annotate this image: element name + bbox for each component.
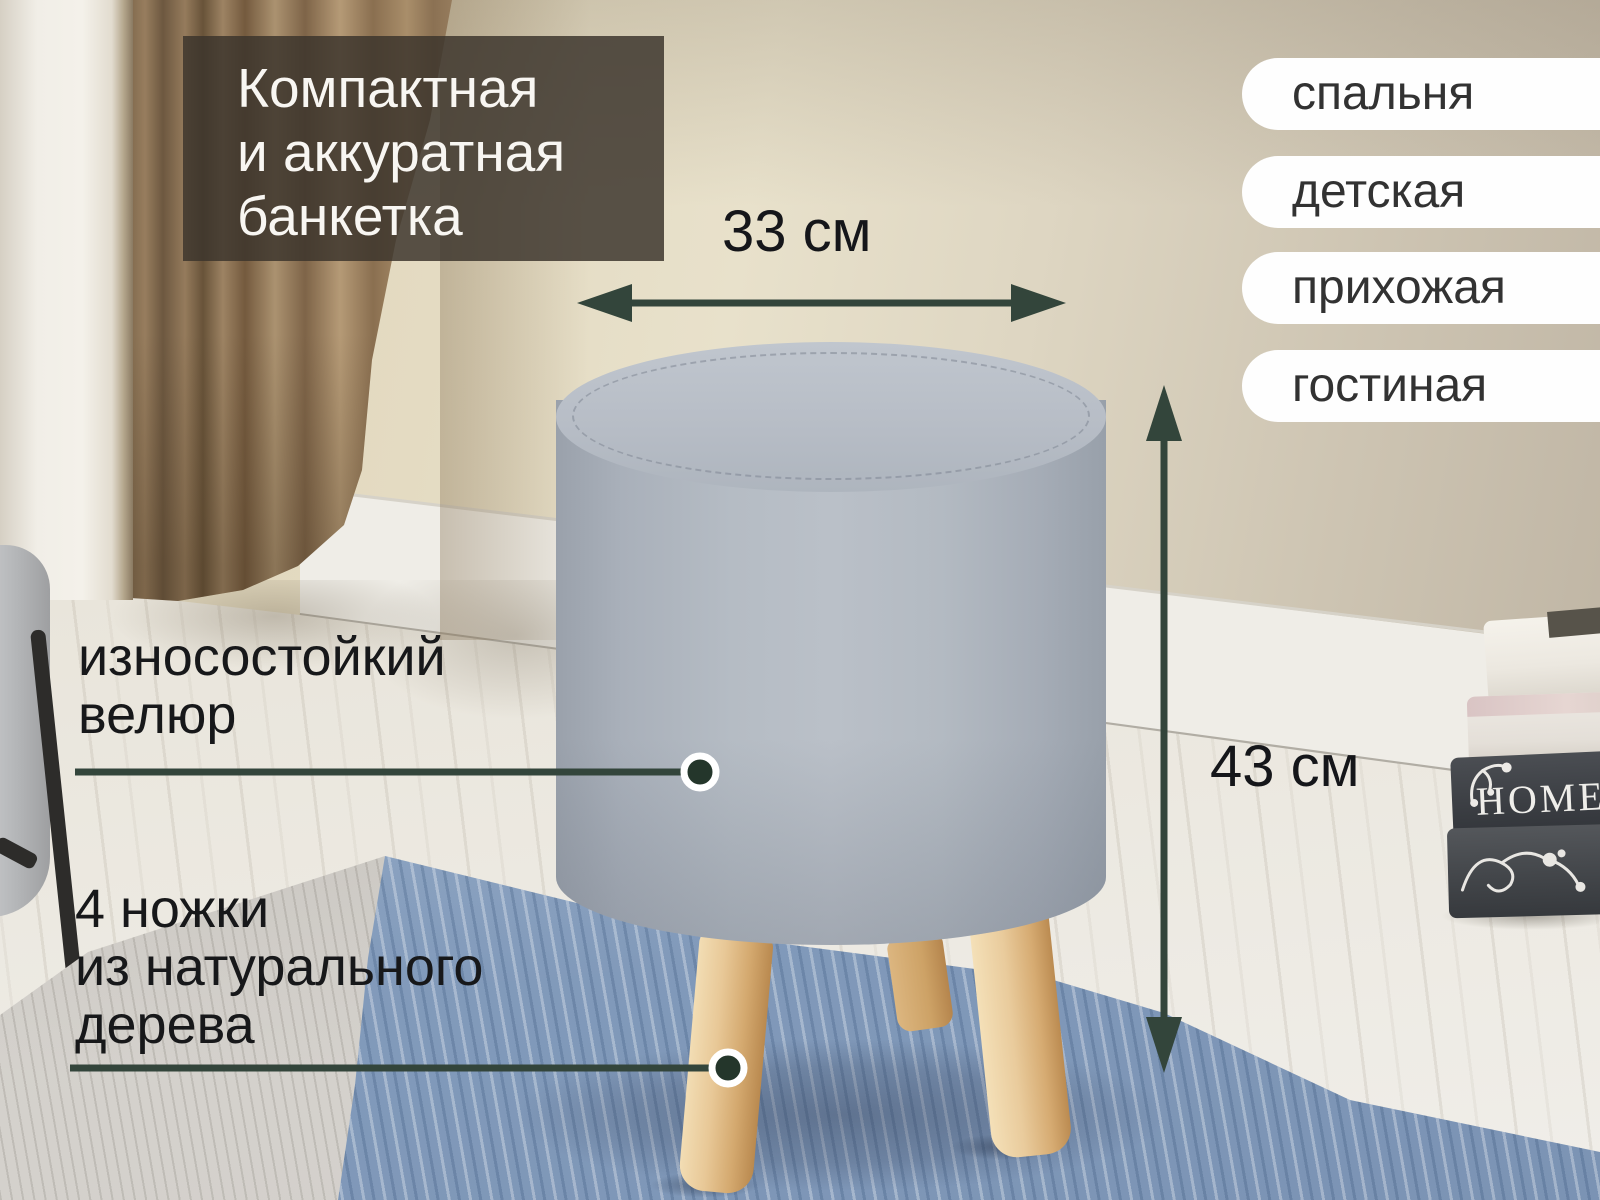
vine-pattern-icon xyxy=(1457,836,1600,904)
room-tag-bedroom: спальня xyxy=(1242,58,1600,130)
headline-text: Компактная и аккуратная банкетка xyxy=(237,56,657,248)
room-tag-livingroom: гостиная xyxy=(1242,350,1600,422)
height-dimension-label: 43 см xyxy=(1210,733,1360,800)
room-tag-kids: детская xyxy=(1242,156,1600,228)
product-infographic: HOME Компактная и аккуратная банкетка сп… xyxy=(0,0,1600,1200)
legs-feature-label: 4 ножки из натурального дерева xyxy=(75,880,483,1054)
ottoman-seat-top xyxy=(556,342,1106,492)
seat-feature-label: износостойкий велюр xyxy=(78,628,446,744)
wall-corner-pillar xyxy=(0,0,133,600)
room-tag-hallway: прихожая xyxy=(1242,252,1600,324)
book-patterned xyxy=(1447,824,1600,919)
width-dimension-label: 33 см xyxy=(722,198,872,265)
book-spine-title: HOME xyxy=(1475,772,1600,825)
